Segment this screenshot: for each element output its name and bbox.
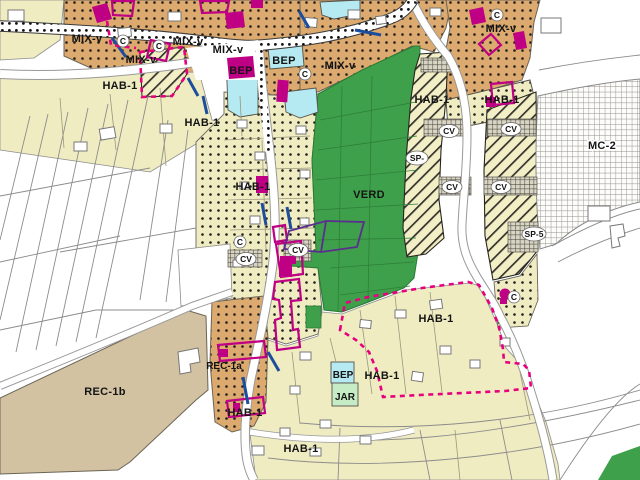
label-bep-1: BEP xyxy=(229,65,253,77)
label-rec1a: REC-1a xyxy=(206,361,242,372)
badge-sp-1-label: SP- xyxy=(410,153,424,163)
badge-cv-2: CV xyxy=(501,123,521,136)
badge-cv-1-label: CV xyxy=(443,126,455,136)
label-hab1-3: HAB-1 xyxy=(235,181,270,193)
badge-c-6: C xyxy=(508,291,520,303)
label-hab1-5: HAB-1 xyxy=(484,94,519,106)
badge-sp-2-label: SP-5 xyxy=(525,229,544,239)
badge-cv-2-label: CV xyxy=(505,124,517,134)
zoning-map-viewport[interactable]: CV CV CV CV CV CV SP- SP-5 C C C C C C M… xyxy=(0,0,640,480)
label-mixv-2: MIX-v xyxy=(173,36,204,48)
badge-cv-6-label: CV xyxy=(292,245,304,255)
badge-c-3: C xyxy=(299,68,311,80)
label-jar: JAR xyxy=(335,392,356,403)
label-bep-2: BEP xyxy=(272,55,296,67)
label-hab1-1: HAB-1 xyxy=(102,80,137,92)
label-hab1-7: HAB-1 xyxy=(364,370,399,382)
badge-cv-4: CV xyxy=(491,181,511,194)
label-mixv-6: MIX-v xyxy=(486,23,517,35)
badge-cv-3: CV xyxy=(442,181,462,194)
badge-c-6-label: C xyxy=(511,292,517,302)
label-hab1-4: HAB-1 xyxy=(414,94,449,106)
label-mc2: MC-2 xyxy=(588,140,616,152)
badge-c-1: C xyxy=(117,35,129,47)
badge-cv-6: CV xyxy=(288,244,308,257)
label-mixv-5: MIX-v xyxy=(325,60,356,72)
badge-cv-5: CV xyxy=(236,253,256,266)
label-mixv-3: MIX-v xyxy=(213,44,244,56)
badge-c-3-label: C xyxy=(302,69,308,79)
badge-sp-1: SP- xyxy=(406,151,428,165)
badge-cv-5-label: CV xyxy=(240,254,252,264)
label-hab1-2: HAB-1 xyxy=(184,117,219,129)
label-rec1b: REC-1b xyxy=(84,386,126,398)
badge-cv-1: CV xyxy=(439,125,459,138)
label-hab1-6: HAB-1 xyxy=(418,313,453,325)
label-verd: VERD xyxy=(353,189,385,201)
label-hab1-9: HAB-1 xyxy=(283,443,318,455)
label-mixv-4: MIX-v xyxy=(126,54,157,66)
zoning-map[interactable]: CV CV CV CV CV CV SP- SP-5 C C C C C C M… xyxy=(0,0,640,480)
zone-cyan-junction xyxy=(284,88,318,118)
badge-c-5-label: C xyxy=(237,237,243,247)
zone-verd-small xyxy=(306,306,321,328)
badge-c-2: C xyxy=(153,40,165,52)
badge-cv-3-label: CV xyxy=(446,182,458,192)
badge-c-2-label: C xyxy=(156,41,162,51)
label-mixv-1: MIX-v xyxy=(72,33,103,45)
badge-c-4: C xyxy=(491,9,503,21)
badge-cv-4-label: CV xyxy=(495,182,507,192)
badge-c-5: C xyxy=(234,236,246,248)
label-hab1-8: HAB-1 xyxy=(227,407,262,419)
label-bep-3: BEP xyxy=(333,370,354,381)
badge-c-4-label: C xyxy=(494,10,500,20)
badge-sp-2: SP-5 xyxy=(522,227,546,241)
badge-c-1-label: C xyxy=(120,36,126,46)
